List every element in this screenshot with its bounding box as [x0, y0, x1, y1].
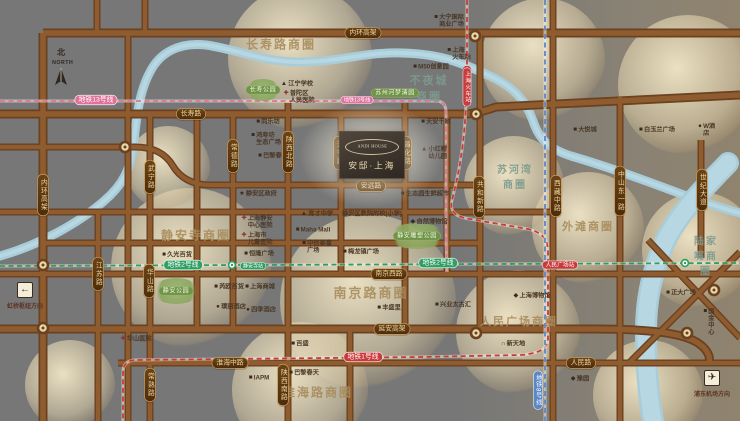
project-name-en: ANDI HOUSE: [357, 144, 387, 149]
poi-text: M50创意园: [418, 64, 449, 71]
hospital-icon: ✚: [283, 90, 288, 96]
road-name-pill: 陕西北路: [282, 131, 294, 173]
plane-icon: ✈: [704, 370, 720, 386]
poi-text: 静安区教院附校(小学): [342, 211, 402, 218]
train-icon: ■: [447, 47, 451, 53]
mall-icon: ■: [573, 127, 577, 133]
poi-text: 兴业太古汇: [440, 302, 471, 309]
poi-text: 丰盛里: [382, 305, 401, 312]
poi-label: ■正大广场: [666, 290, 696, 297]
hongqiao-direction: ← 虹桥枢纽方向: [3, 282, 47, 313]
road-name-pill: 武宁路: [144, 160, 156, 194]
poi-text: 豫园: [577, 376, 589, 383]
gov-icon: ★: [239, 191, 245, 197]
hospital-icon: ✚: [120, 336, 125, 342]
mall-icon: ■: [296, 227, 300, 233]
business-district-label: 静安寺商圈: [161, 227, 231, 244]
location-map: 长寿公园苏州河梦清园静安公园静安雕塑公园长寿路商圈不夜城 商圈苏河湾 商圈静安寺…: [0, 0, 740, 421]
poi-label: ■同乐坊: [256, 119, 280, 126]
mall-icon: ■: [666, 290, 670, 296]
poi-label: ■恒隆广场: [244, 251, 274, 258]
road-junction-icon: [38, 323, 48, 333]
poi-text: IAPM: [254, 375, 270, 382]
poi-label: ■上海 火车站: [447, 47, 471, 61]
road-name-pill: 人民路: [566, 357, 596, 369]
poi-text: 国金中心: [708, 308, 720, 335]
poi-text: 恒隆广场: [249, 251, 274, 258]
poi-label: ★静安区政府: [239, 191, 277, 198]
mall-icon: ■: [162, 252, 166, 258]
road-name-pill: 内环高架: [37, 174, 49, 216]
poi-text: 育才中学: [308, 211, 333, 218]
poi-label: ▲小红帽 幼儿园: [421, 146, 447, 160]
poi-label: ■中信泰富 广场: [302, 240, 332, 254]
poi-text: Maha Mall: [301, 227, 331, 234]
poi-label: ■IAPM: [249, 375, 269, 382]
poi-label: ✚上海市 儿童医院: [241, 232, 272, 246]
business-district-label: 长寿路商圈: [246, 36, 316, 53]
metro-label-pill: 上海火车站: [463, 68, 472, 107]
poi-label: ∩新天地: [501, 341, 525, 348]
hospital-icon: ✚: [241, 215, 246, 221]
poi-label: ■梅龙镇广场: [343, 249, 379, 256]
museum-icon: ◆: [513, 293, 518, 299]
poi-text: 新天地: [507, 341, 526, 348]
poi-text: 璞丽酒店: [221, 304, 246, 311]
poi-label: ◆上海博物馆: [513, 293, 550, 300]
poi-text: 生态园生鲜超市: [406, 191, 449, 198]
road-name-pill: 中山东一路: [614, 166, 626, 216]
poi-label: ■M50创意园: [413, 64, 449, 71]
school-icon: ▲: [281, 81, 287, 87]
road-name-pill: 共和新路: [473, 176, 485, 218]
mall-icon: ■: [343, 249, 347, 255]
poi-label: ■大宁国际 商业广场: [434, 14, 464, 28]
mall-icon: ■: [421, 119, 425, 125]
poi-text: 鸿寿坊 生态广场: [256, 132, 281, 146]
poi-text: 上海 火车站: [452, 47, 471, 61]
pudong-direction-label: 浦东机场方向: [694, 389, 730, 398]
road-name-pill: 淮海中路: [212, 357, 249, 369]
poi-text: 同乐坊: [261, 119, 280, 126]
mall-icon: ■: [251, 132, 255, 138]
park-label: 静安雕塑公园: [393, 232, 441, 241]
poi-text: 白玉兰广场: [644, 127, 675, 134]
poi-label: ■丰盛里: [377, 305, 401, 312]
school-icon: ▲: [301, 211, 307, 217]
arch-icon: ∩: [501, 341, 505, 347]
poi-text: 自然博物馆: [417, 219, 448, 226]
project-logo: ANDI HOUSE 安邸·上海: [339, 131, 405, 179]
mall-icon: ■: [639, 127, 643, 133]
road-name-pill: 安远路: [356, 180, 386, 192]
mall-icon: ■: [289, 370, 293, 376]
metro-label-pill: 地铁1号线: [343, 352, 382, 362]
compass-north-cn: 北: [47, 46, 74, 58]
poi-label: ●璞丽酒店: [216, 304, 246, 311]
hotel-icon: ●: [698, 123, 702, 129]
road-junction-icon: [470, 31, 480, 41]
poi-label: ■百盛: [291, 341, 308, 348]
business-district-label: 外滩商圈: [562, 218, 614, 234]
road-junction-icon: [682, 328, 692, 338]
road-name-pill: 常德路: [227, 139, 239, 173]
business-district-label: 陆家嘴商圈: [689, 233, 723, 278]
poi-text: 小红帽 幼儿园: [428, 146, 447, 160]
mall-icon: ■: [258, 153, 262, 159]
mall-icon: ■: [434, 14, 438, 20]
poi-label: ■国金中心: [703, 308, 720, 335]
poi-text: 江宁学校: [288, 81, 313, 88]
poi-label: ✚上海静安 中心医院: [241, 215, 272, 229]
business-district-label: 人民广场商圈: [480, 313, 558, 329]
poi-text: 上海商城: [250, 284, 275, 291]
poi-text: W酒店: [703, 123, 718, 137]
poi-text: 百盛: [296, 341, 308, 348]
park-label: 静安公园: [159, 287, 194, 296]
poi-text: 巴黎春天: [294, 370, 319, 377]
poi-text: 梅龙镇广场: [348, 249, 379, 256]
poi-label: ◆自然博物馆: [410, 219, 447, 226]
compass-north-en: NORTH: [52, 60, 70, 66]
mall-icon: ■: [377, 305, 381, 311]
poi-label: ✚普陀区 人民医院: [283, 90, 314, 104]
road-name-pill: 延安高架: [374, 323, 411, 335]
road-junction-icon: [120, 142, 130, 152]
road-name-pill: 南京西路: [371, 268, 408, 280]
poi-text: 大悦城: [578, 127, 597, 134]
poi-text: 普陀区 人民医院: [290, 90, 315, 104]
mall-icon: ■: [249, 375, 253, 381]
poi-label: ▲育才中学: [301, 211, 333, 218]
project-name-cn: 安邸·上海: [349, 157, 396, 170]
metro-station-icon: [682, 260, 689, 267]
mall-icon: ■: [435, 302, 439, 308]
road-name-pill: 常熟路: [144, 368, 156, 402]
arrow-left-icon: ←: [17, 282, 33, 298]
poi-label: ●四季酒店: [246, 307, 276, 314]
road-name-pill: 华山路: [143, 264, 155, 298]
poi-text: 正大广场: [671, 290, 696, 297]
metro-label-pill: 地铁13号线: [75, 95, 118, 105]
mall-icon: ■: [245, 284, 249, 290]
mall-icon: ■: [244, 251, 248, 257]
poi-text: 芮欧百货: [219, 284, 244, 291]
park-label: 苏州河梦清园: [371, 89, 419, 98]
poi-label: ■鸿寿坊 生态广场: [251, 132, 281, 146]
poi-label: ■Maha Mall: [296, 227, 331, 234]
business-district-label: 淮海路商圈: [283, 384, 353, 401]
road-junction-icon: [471, 328, 481, 338]
poi-label: ■芮欧百货: [214, 284, 244, 291]
road-name-pill: 内环高架: [345, 27, 382, 39]
compass: 北 NORTH: [44, 44, 78, 86]
mall-icon: ■: [214, 284, 218, 290]
road-name-pill: 世纪大道: [696, 169, 708, 211]
poi-label: ■大悦城: [573, 127, 597, 134]
poi-text: 静安区政府: [246, 191, 277, 198]
poi-label: ▲江宁学校: [281, 81, 313, 88]
art-icon: ■: [413, 64, 417, 70]
hospital-icon: ✚: [241, 232, 246, 238]
road-junction-icon: [471, 109, 481, 119]
mall-icon: ■: [302, 240, 306, 246]
pudong-airport-direction: ✈ 浦东机场方向: [690, 370, 734, 401]
mall-icon: ■: [291, 341, 295, 347]
poi-label: ●W酒店: [698, 123, 718, 137]
metro-label-pill: 地铁8号线: [533, 371, 542, 410]
poi-label: ■久光百货: [162, 252, 192, 259]
road-junction-icon: [38, 260, 48, 270]
poi-text: 上海博物馆: [520, 293, 551, 300]
road-name-pill: 陕西南路: [277, 364, 289, 406]
poi-label: ■生态园生鲜超市: [401, 191, 449, 198]
business-district-label: 苏河湾 商圈: [497, 161, 533, 191]
poi-label: ■白玉兰广场: [639, 127, 675, 134]
hotel-icon: ●: [216, 304, 220, 310]
road-name-pill: 江苏路: [92, 257, 104, 291]
road-name-pill: 西藏中路: [550, 175, 562, 217]
metro-label-pill: 地铁2号线: [163, 260, 202, 270]
poi-text: 华山医院: [127, 336, 152, 343]
mall-icon: ■: [256, 119, 260, 125]
poi-label: ■上海商城: [245, 284, 275, 291]
mall-icon: ■: [703, 308, 707, 314]
hotel-icon: ●: [246, 307, 250, 313]
metro-label-pill: 静安寺站: [240, 262, 266, 270]
temple-icon: ◆: [571, 376, 576, 382]
road-name-pill: 长寿路: [176, 108, 206, 120]
metro-label-pill: 人民广场站: [542, 261, 578, 270]
poi-text: 久光百货: [167, 252, 192, 259]
poi-text: 中信泰富 广场: [307, 240, 332, 254]
poi-label: ◆豫园: [571, 376, 589, 383]
road-junction-icon: [709, 285, 719, 295]
poi-text: 上海市 儿童医院: [248, 232, 273, 246]
poi-text: 大宁国际 商业广场: [439, 14, 464, 28]
compass-needle-icon: [53, 68, 69, 86]
poi-label: ■巴黎春天: [289, 370, 319, 377]
school-icon: ▲: [421, 146, 427, 152]
poi-text: 天安千树: [426, 119, 451, 126]
poi-label: ■兴业太古汇: [435, 302, 471, 309]
hongqiao-direction-label: 虹桥枢纽方向: [7, 301, 43, 310]
market-icon: ■: [401, 191, 405, 197]
poi-label: ■天安千树: [421, 119, 451, 126]
park-label: 长寿公园: [246, 86, 281, 95]
poi-text: 四季酒店: [251, 307, 276, 314]
museum-icon: ◆: [410, 219, 415, 225]
logo-crest: ANDI HOUSE: [345, 139, 399, 155]
business-district-label: 南京路商圈: [333, 283, 408, 302]
metro-station-icon: [229, 262, 236, 269]
poi-label: ✚华山医院: [120, 336, 151, 343]
metro-label-pill: 地铁2号线: [418, 258, 457, 268]
poi-label: 静安区教院附校(小学): [342, 211, 402, 218]
metro-label-pill: 地铁13号线: [341, 96, 374, 104]
poi-text: 上海静安 中心医院: [248, 215, 273, 229]
